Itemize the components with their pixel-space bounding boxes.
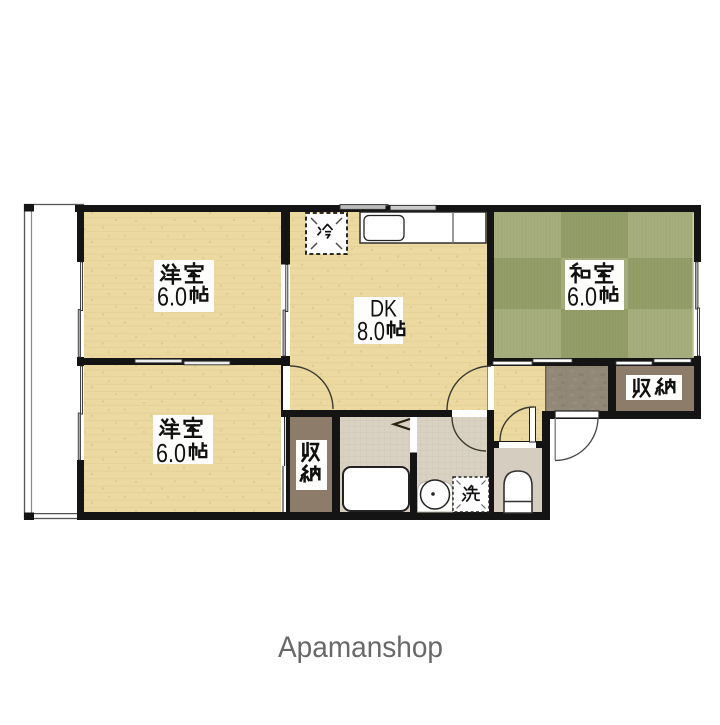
svg-text:6.0: 6.0: [567, 282, 597, 312]
svg-text:Apamanshop: Apamanshop: [278, 631, 443, 664]
svg-text:6.0: 6.0: [157, 282, 187, 312]
svg-text:6.0: 6.0: [156, 438, 186, 468]
svg-text:8.0: 8.0: [357, 316, 385, 346]
